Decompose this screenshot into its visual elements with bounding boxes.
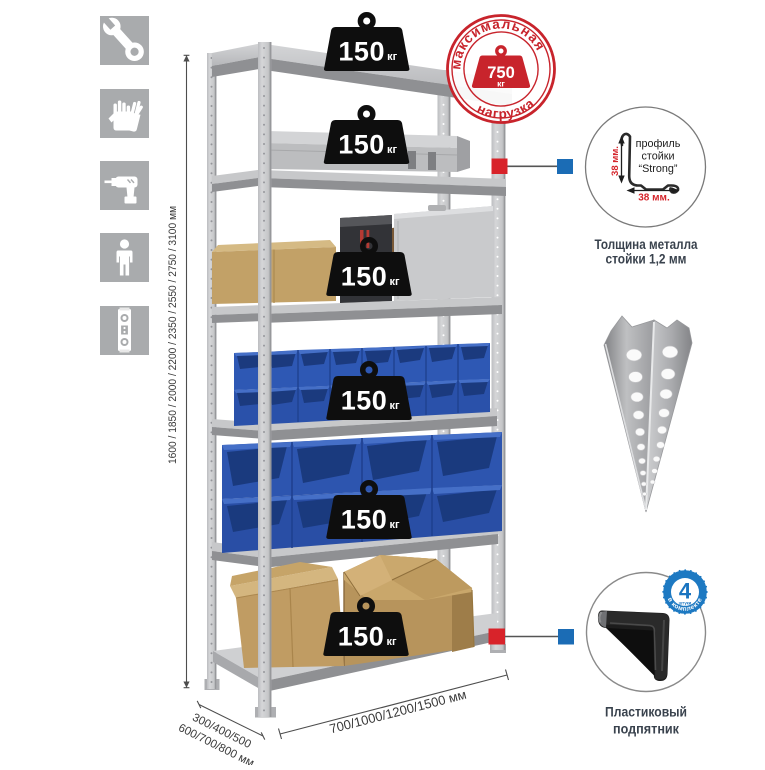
svg-text:38 мм.: 38 мм. (610, 146, 621, 176)
svg-text:38 мм.: 38 мм. (638, 193, 670, 204)
svg-text:Пластиковый: Пластиковый (605, 704, 687, 720)
svg-text:профиль: профиль (636, 138, 681, 150)
svg-text:“Strong”: “Strong” (638, 163, 677, 175)
svg-text:1600 / 1850 / 2000 / 2200 / 23: 1600 / 1850 / 2000 / 2200 / 2350 / 2550 … (167, 206, 179, 464)
svg-text:штуки: штуки (679, 601, 692, 606)
svg-text:стойки: стойки (641, 151, 674, 163)
svg-text:700/1000/1200/1500 мм: 700/1000/1200/1500 мм (328, 687, 468, 737)
svg-text:стойки 1,2 мм: стойки 1,2 мм (606, 251, 687, 267)
svg-text:кг: кг (497, 79, 505, 89)
svg-text:подпятник: подпятник (613, 721, 680, 737)
